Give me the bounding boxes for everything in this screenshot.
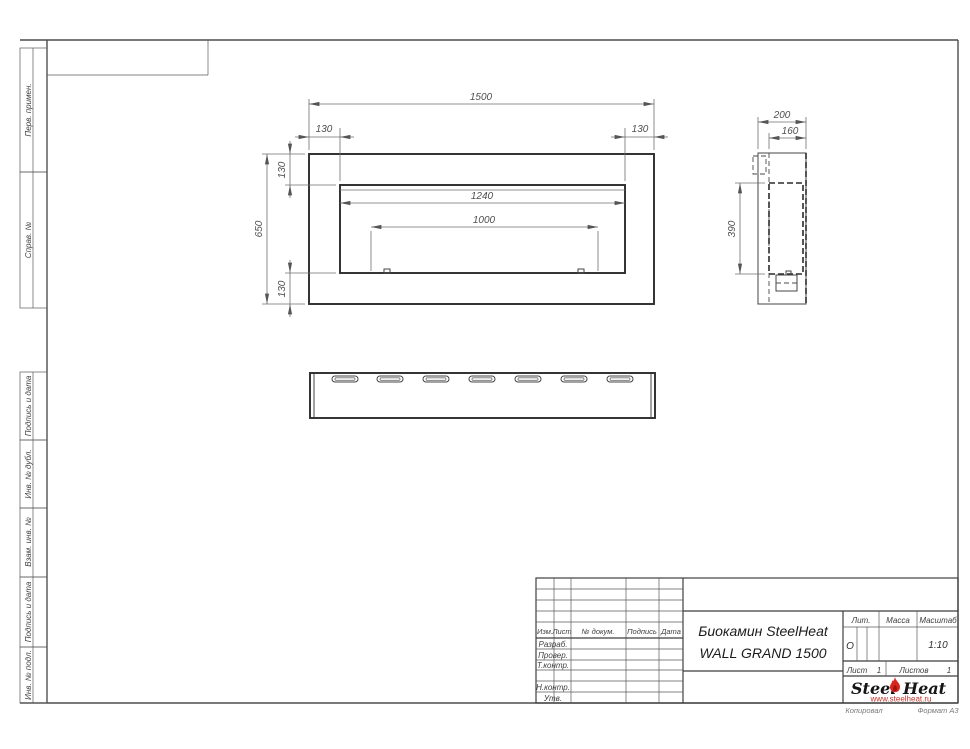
col-sign: Подпись [627, 627, 657, 636]
col-izm: Изм. [537, 627, 553, 636]
dim-front-margin-bottom: 130 [277, 280, 288, 297]
role-tcontrol: Т.контр. [537, 661, 569, 670]
margin-label-perv-primen: Перв. примен. [24, 83, 33, 136]
sheets-label: Листов [898, 666, 928, 675]
sheets-value: 1 [947, 666, 951, 675]
signature-rows: Разраб. Провер. Т.контр. Н.контр. Утв. [536, 640, 570, 703]
dim-side-opening-height: 390 [727, 220, 738, 237]
dim-side-inner-depth: 160 [782, 126, 799, 137]
product-line2: WALL GRAND 1500 [699, 645, 826, 661]
dim-side-depth: 200 [773, 110, 791, 121]
margin-label-sprav-no: Справ. № [24, 221, 33, 258]
format-label: Формат А3 [917, 706, 959, 715]
dim-front-height: 650 [254, 220, 265, 237]
copied-label: Копировал [845, 706, 883, 715]
margin-columns: Перв. примен. Справ. № Подпись и дата Ин… [20, 48, 47, 703]
wall-bracket [753, 156, 766, 174]
front-view [309, 154, 654, 304]
steelheat-logo: Steel Heat www.steelheat.ru [851, 677, 947, 704]
dim-burner-width: 1000 [473, 215, 496, 226]
drawing-sheet: Перв. примен. Справ. № Подпись и дата Ин… [0, 0, 970, 749]
logo-url: www.steelheat.ru [870, 695, 932, 704]
sheet-frame [20, 40, 958, 703]
dim-front-width: 1500 [470, 92, 493, 103]
col-list: Лист [551, 627, 571, 636]
dim-front-margin-right: 130 [632, 124, 649, 135]
col-doc: № докум. [581, 627, 614, 636]
sheet-count-row: Лист 1 Листов 1 [846, 666, 952, 675]
product-name: Биокамин SteelHeat WALL GRAND 1500 [698, 623, 829, 661]
role-developed: Разраб. [539, 640, 568, 649]
front-view-dimensions: 1500 130 130 650 130 130 1240 1000 [254, 92, 668, 317]
margin-label-podpis-data-1: Подпись и дата [24, 375, 33, 436]
footer-notes: Копировал Формат А3 [845, 706, 959, 715]
dim-front-margin-left: 130 [316, 124, 333, 135]
vent-slots [332, 376, 633, 382]
margin-label-inv-dubl: Инв. № дубл. [24, 449, 33, 498]
role-checked: Провер. [538, 651, 568, 660]
drawing-canvas: Перв. примен. Справ. № Подпись и дата Ин… [0, 0, 970, 749]
scale-value: 1:10 [928, 640, 948, 651]
product-line1: Биокамин SteelHeat [698, 623, 829, 639]
lit-label: Лит. [851, 616, 871, 625]
bottom-view [310, 373, 655, 418]
mass-label: Масса [886, 616, 910, 625]
top-left-stamp-box [47, 40, 208, 75]
margin-label-vzam-inv: Взам. инв. № [24, 517, 33, 567]
scale-label: Масштаб [919, 616, 957, 625]
lit-mass-scale: Лит. Масса Масштаб О 1:10 [846, 616, 957, 652]
lit-value: О [846, 641, 854, 652]
sheet-value: 1 [877, 666, 881, 675]
dim-opening-width: 1240 [471, 191, 494, 202]
role-approved: Утв. [543, 694, 562, 703]
margin-label-podpis-data-2: Подпись и дата [24, 581, 33, 642]
col-date: Дата [660, 627, 681, 636]
title-block: Изм. Лист № докум. Подпись Дата Разраб. … [536, 578, 958, 704]
role-ncontrol: Н.контр. [536, 683, 570, 692]
margin-label-inv-podl: Инв. № подл. [24, 650, 33, 700]
side-view-dimensions: 200 160 390 [727, 110, 806, 274]
sheet-label: Лист [846, 666, 868, 675]
dim-front-margin-top: 130 [277, 161, 288, 178]
side-view [753, 153, 806, 304]
